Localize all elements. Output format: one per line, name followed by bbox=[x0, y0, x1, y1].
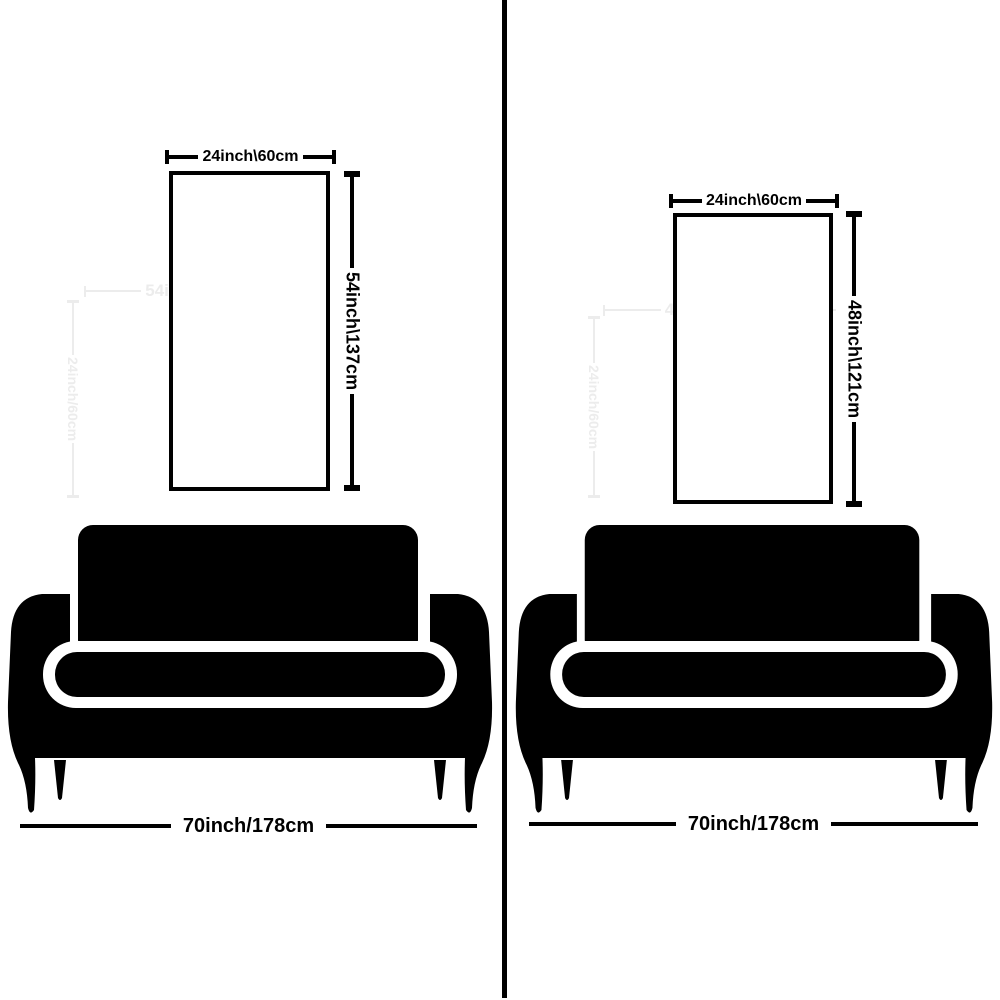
dimension-line bbox=[20, 824, 171, 828]
poster-width-label: 24inch\60cm bbox=[198, 148, 302, 166]
sofa-icon bbox=[0, 510, 500, 840]
poster-outline bbox=[673, 213, 833, 504]
ghost-line bbox=[86, 290, 141, 292]
ghost-cap bbox=[588, 495, 600, 498]
ghost-line bbox=[593, 319, 595, 363]
dimension-tick bbox=[835, 194, 839, 208]
dimension-line bbox=[169, 155, 198, 159]
ghost-cap bbox=[67, 495, 79, 498]
dimension-line bbox=[529, 822, 676, 826]
ghost-line bbox=[72, 303, 74, 355]
sofa-left-leg bbox=[561, 760, 573, 800]
ghost-vertical-label: 24inch/60cm bbox=[586, 363, 602, 451]
dimension-line bbox=[673, 199, 702, 203]
poster-height-dimension: 48inch\121cm bbox=[843, 211, 865, 507]
dimension-cap bbox=[344, 485, 360, 491]
sofa-seat-cushion bbox=[562, 652, 946, 697]
sofa-back-cushion bbox=[78, 525, 418, 655]
sofa-right-leg bbox=[935, 760, 947, 800]
poster-height-dimension: 54inch\137cm bbox=[341, 171, 363, 491]
sofa-width-label: 70inch/178cm bbox=[171, 815, 326, 838]
ghost-vertical-dimension: 24inch/60cm bbox=[585, 316, 603, 498]
ghost-line bbox=[605, 309, 661, 311]
dimension-tick bbox=[332, 150, 336, 164]
ghost-vertical-label: 24inch/60cm bbox=[65, 355, 81, 443]
dimension-line bbox=[806, 199, 835, 203]
dimension-cap bbox=[846, 501, 862, 507]
poster-width-dimension: 24inch\60cm bbox=[165, 146, 336, 168]
poster-width-dimension: 24inch\60cm bbox=[669, 190, 839, 212]
dimension-line bbox=[852, 422, 856, 501]
dimension-line bbox=[852, 217, 856, 296]
ghost-vertical-dimension: 24inch/60cm bbox=[64, 300, 82, 498]
sofa-back-cushion bbox=[585, 525, 920, 655]
dimension-line bbox=[831, 822, 978, 826]
ghost-line bbox=[72, 443, 74, 495]
poster-outline bbox=[169, 171, 330, 491]
dimension-line bbox=[326, 824, 477, 828]
dimension-line bbox=[350, 394, 354, 485]
sofa-width-dimension: 70inch/178cm bbox=[529, 812, 978, 836]
dimension-line bbox=[350, 177, 354, 268]
sofa-seat-cushion bbox=[55, 652, 445, 697]
sofa-icon bbox=[508, 510, 1000, 840]
sofa-width-label: 70inch/178cm bbox=[676, 813, 831, 836]
poster-height-label: 54inch\137cm bbox=[342, 268, 363, 394]
sofa-right-leg bbox=[434, 760, 446, 800]
panel-right: 48inch/121cm 24inch/60cm 24inch\60cm 48i… bbox=[506, 0, 1000, 1000]
poster-width-label: 24inch\60cm bbox=[702, 192, 806, 210]
dimension-line bbox=[303, 155, 332, 159]
size-comparison-diagram: 54inch/137cm 24inch/60cm 24inch\60cm 54i… bbox=[0, 0, 1000, 1000]
panel-left: 54inch/137cm 24inch/60cm 24inch\60cm 54i… bbox=[0, 0, 500, 1000]
sofa-width-dimension: 70inch/178cm bbox=[20, 814, 477, 838]
poster-height-label: 48inch\121cm bbox=[844, 296, 865, 422]
sofa-left-leg bbox=[54, 760, 66, 800]
ghost-line bbox=[593, 451, 595, 495]
